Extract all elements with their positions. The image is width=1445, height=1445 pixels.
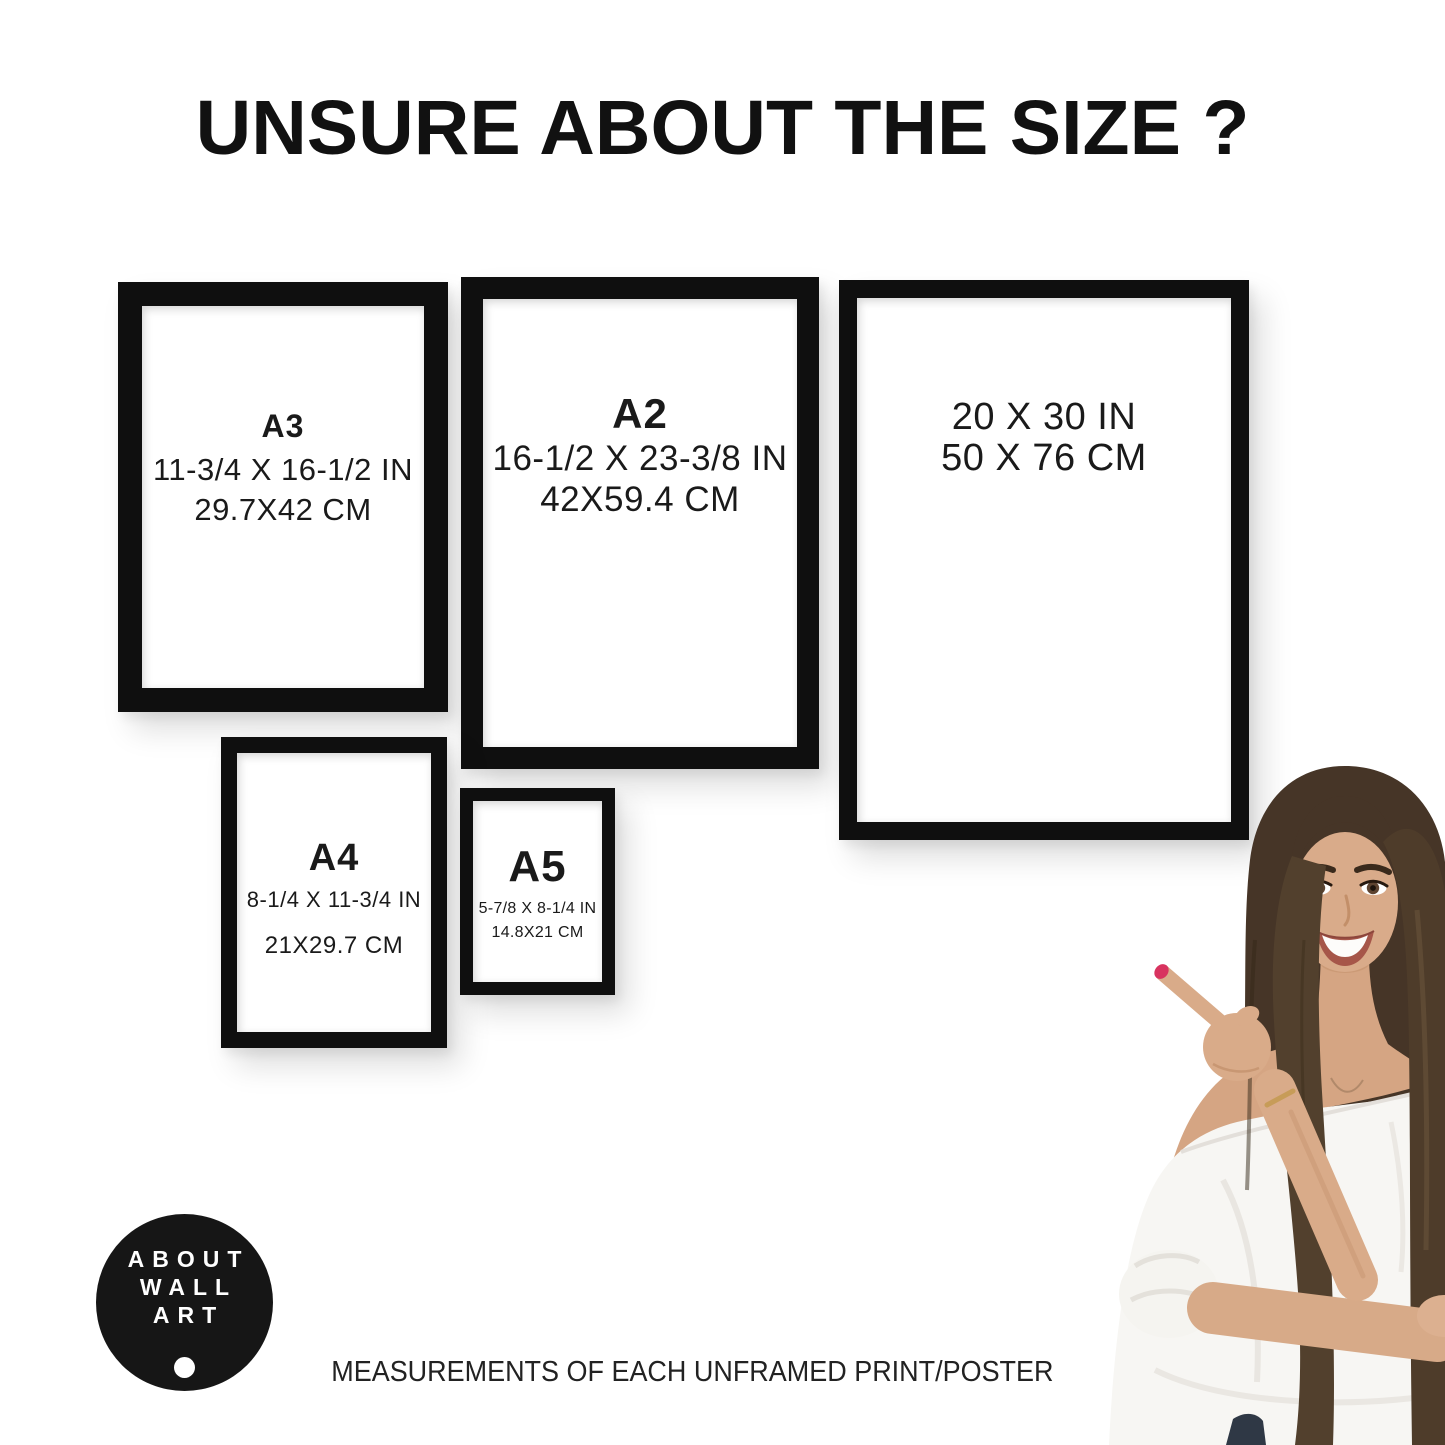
logo-dot — [174, 1357, 195, 1378]
size-cm-a5: 14.8X21 CM — [473, 921, 602, 945]
size-inches-20x30: 20 X 30 IN — [857, 397, 1231, 438]
size-frame-a3-text: A3 11-3/4 X 16-1/2 IN 29.7X42 CM — [142, 410, 424, 530]
size-cm-20x30: 50 X 76 CM — [857, 438, 1231, 479]
woman-illustration — [1109, 766, 1445, 1445]
logo-line-wall: WALL — [96, 1273, 273, 1301]
size-inches-a5: 5-7/8 X 8-1/4 IN — [473, 897, 602, 921]
page-title: UNSURE ABOUT THE SIZE ? — [0, 84, 1445, 173]
size-frame-a2-text: A2 16-1/2 X 23-3/8 IN 42X59.4 CM — [483, 393, 797, 520]
size-frame-20x30-text: 20 X 30 IN 50 X 76 CM — [857, 397, 1231, 479]
brand-logo: ABOUT WALL ART — [96, 1214, 273, 1391]
size-cm-a3: 29.7X42 CM — [142, 490, 424, 530]
logo-line-about: ABOUT — [96, 1245, 273, 1273]
size-inches-a4: 8-1/4 X 11-3/4 IN — [237, 883, 431, 917]
size-label-a5: A5 — [473, 845, 602, 889]
size-guide-poster: UNSURE ABOUT THE SIZE ? A3 11-3/4 X 16-1… — [0, 0, 1445, 1445]
pointing-finger — [1163, 973, 1221, 1023]
logo-line-art: ART — [96, 1301, 273, 1329]
woman-photo — [1095, 760, 1445, 1445]
size-frame-a4-text: A4 8-1/4 X 11-3/4 IN 21X29.7 CM — [237, 839, 431, 963]
size-frame-a3: A3 11-3/4 X 16-1/2 IN 29.7X42 CM — [118, 282, 448, 712]
size-label-a2: A2 — [483, 393, 797, 435]
size-frame-a2: A2 16-1/2 X 23-3/8 IN 42X59.4 CM — [461, 277, 819, 769]
footer-caption: MEASUREMENTS OF EACH UNFRAMED PRINT/POST… — [331, 1356, 1029, 1389]
size-cm-a4: 21X29.7 CM — [237, 929, 431, 963]
size-frame-a5-text: A5 5-7/8 X 8-1/4 IN 14.8X21 CM — [473, 845, 602, 945]
size-cm-a2: 42X59.4 CM — [483, 479, 797, 520]
size-label-a4: A4 — [237, 839, 431, 877]
size-inches-a3: 11-3/4 X 16-1/2 IN — [142, 450, 424, 490]
size-frame-a4: A4 8-1/4 X 11-3/4 IN 21X29.7 CM — [221, 737, 447, 1048]
size-inches-a2: 16-1/2 X 23-3/8 IN — [483, 438, 797, 479]
size-label-a3: A3 — [142, 410, 424, 442]
woman-crossed-arm — [1213, 1308, 1437, 1336]
size-frame-20x30: 20 X 30 IN 50 X 76 CM — [839, 280, 1249, 840]
size-frame-a5: A5 5-7/8 X 8-1/4 IN 14.8X21 CM — [460, 788, 615, 995]
brand-logo-text: ABOUT WALL ART — [96, 1245, 273, 1329]
